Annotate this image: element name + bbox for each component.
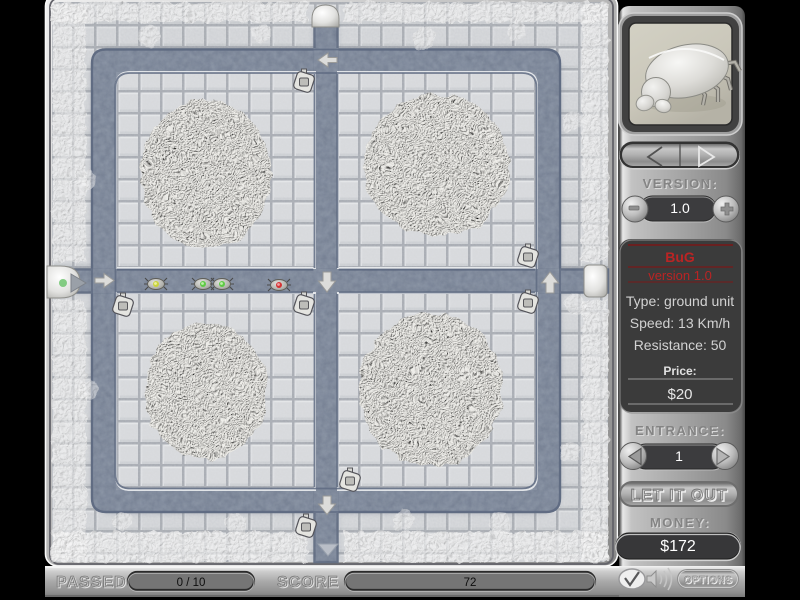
svg-text:1.0: 1.0 xyxy=(670,200,690,216)
svg-text:$20: $20 xyxy=(667,386,692,403)
svg-text:BuG: BuG xyxy=(665,249,695,265)
svg-text:OPTIONS: OPTIONS xyxy=(684,575,733,586)
svg-text:$172: $172 xyxy=(660,538,696,555)
svg-text:Speed: 13 Km/h: Speed: 13 Km/h xyxy=(630,315,730,331)
svg-text:ENTRANCE:: ENTRANCE: xyxy=(635,423,725,438)
svg-text:SCORE: SCORE xyxy=(277,574,339,591)
svg-text:0 / 10: 0 / 10 xyxy=(177,577,206,589)
svg-text:1: 1 xyxy=(675,448,683,464)
svg-text:version 1.0: version 1.0 xyxy=(648,268,712,283)
svg-text:72: 72 xyxy=(464,577,477,589)
svg-text:VERSION:: VERSION: xyxy=(643,176,718,191)
svg-text:Price:: Price: xyxy=(663,364,696,378)
svg-text:PASSED: PASSED xyxy=(56,574,127,591)
svg-text:LET IT OUT: LET IT OUT xyxy=(630,487,727,504)
svg-text:Type: ground unit: Type: ground unit xyxy=(626,293,734,309)
svg-text:Resistance: 50: Resistance: 50 xyxy=(634,337,727,353)
svg-text:MONEY:: MONEY: xyxy=(650,515,710,530)
